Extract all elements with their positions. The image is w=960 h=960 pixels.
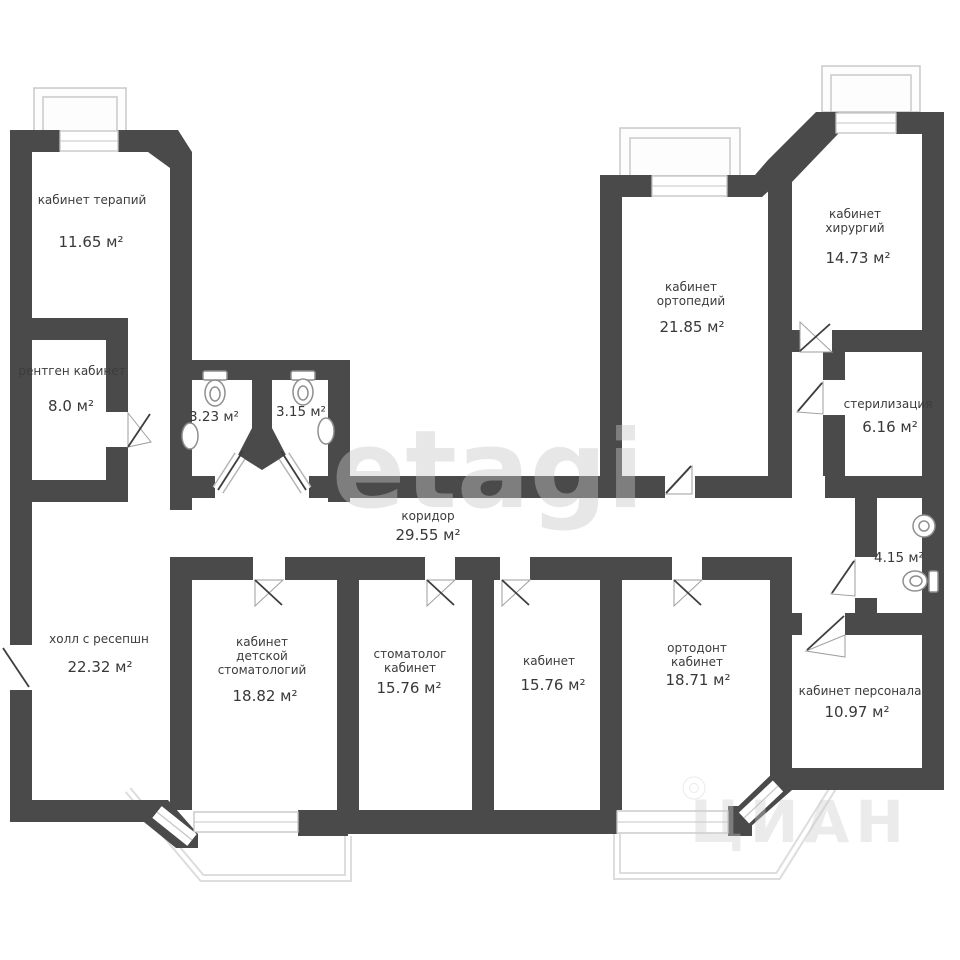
room-area-detskaya: 18.82 м²	[232, 687, 297, 705]
room-label-hall: холл с ресепшн	[19, 632, 179, 646]
room-area-stomatolog: 15.76 м²	[376, 679, 441, 697]
toilet-icon-wc-left	[203, 371, 227, 406]
sink-icon-wc-415	[913, 515, 935, 537]
room-label-stomatolog: стоматолог кабинет	[364, 647, 456, 675]
window-frame-terapiya	[34, 88, 126, 132]
door-leaf-wc-right	[281, 451, 306, 490]
room-area-personal: 10.97 м²	[824, 703, 889, 721]
window-frame-hirurgiya	[822, 66, 920, 112]
room-label-terapiya: кабинет терапий	[27, 193, 157, 207]
room-area-wc-left: 3.23 м²	[189, 409, 239, 425]
room-area-wc-right: 3.15 м²	[276, 404, 326, 420]
room-area-hirurgiya: 14.73 м²	[825, 249, 890, 267]
door-leaf-entrance	[3, 648, 29, 687]
room-area-ortodont: 18.71 м²	[665, 671, 730, 689]
room-label-rentgen: рентген кабинет	[2, 364, 142, 378]
floor-plan: etagi ЦИАН кабинет терапий 11.65 м² рент…	[0, 0, 960, 960]
room-area-koridor: 29.55 м²	[395, 526, 460, 544]
room-label-kabinet: кабинет	[504, 654, 594, 668]
room-area-wc-415: 4.15 м²	[874, 550, 924, 566]
room-area-sterilizatsiya: 6.16 м²	[862, 418, 918, 436]
room-area-terapiya: 11.65 м²	[58, 233, 123, 251]
room-label-detskaya: кабинет детской стоматологий	[210, 635, 314, 677]
room-area-rentgen: 8.0 м²	[48, 397, 94, 415]
wc-niche-wall	[238, 428, 286, 470]
floor-plan-drawing: etagi ЦИАН	[0, 0, 960, 960]
cian-watermark: ЦИАН	[690, 788, 910, 856]
room-label-koridor: коридор	[373, 509, 483, 523]
room-area-hall: 22.32 м²	[67, 658, 132, 676]
room-label-hirurgiya: кабинет хирургий	[812, 207, 898, 235]
door-leaf-wc-left	[218, 451, 243, 490]
window-frame-ortopediya	[620, 128, 740, 176]
room-label-ortopediya: кабинет ортопедий	[645, 280, 737, 308]
room-area-kabinet: 15.76 м²	[520, 676, 585, 694]
room-label-sterilizatsiya: стерилизация	[823, 397, 953, 411]
toilet-icon-wc-415	[903, 571, 938, 592]
room-label-personal: кабинет персонала	[770, 684, 950, 698]
room-label-ortodont: ортодонт кабинет	[651, 641, 743, 669]
sink-icon-wc-left	[182, 423, 198, 449]
toilet-icon-wc-right	[291, 371, 315, 405]
room-area-ortopediya: 21.85 м²	[659, 318, 724, 336]
